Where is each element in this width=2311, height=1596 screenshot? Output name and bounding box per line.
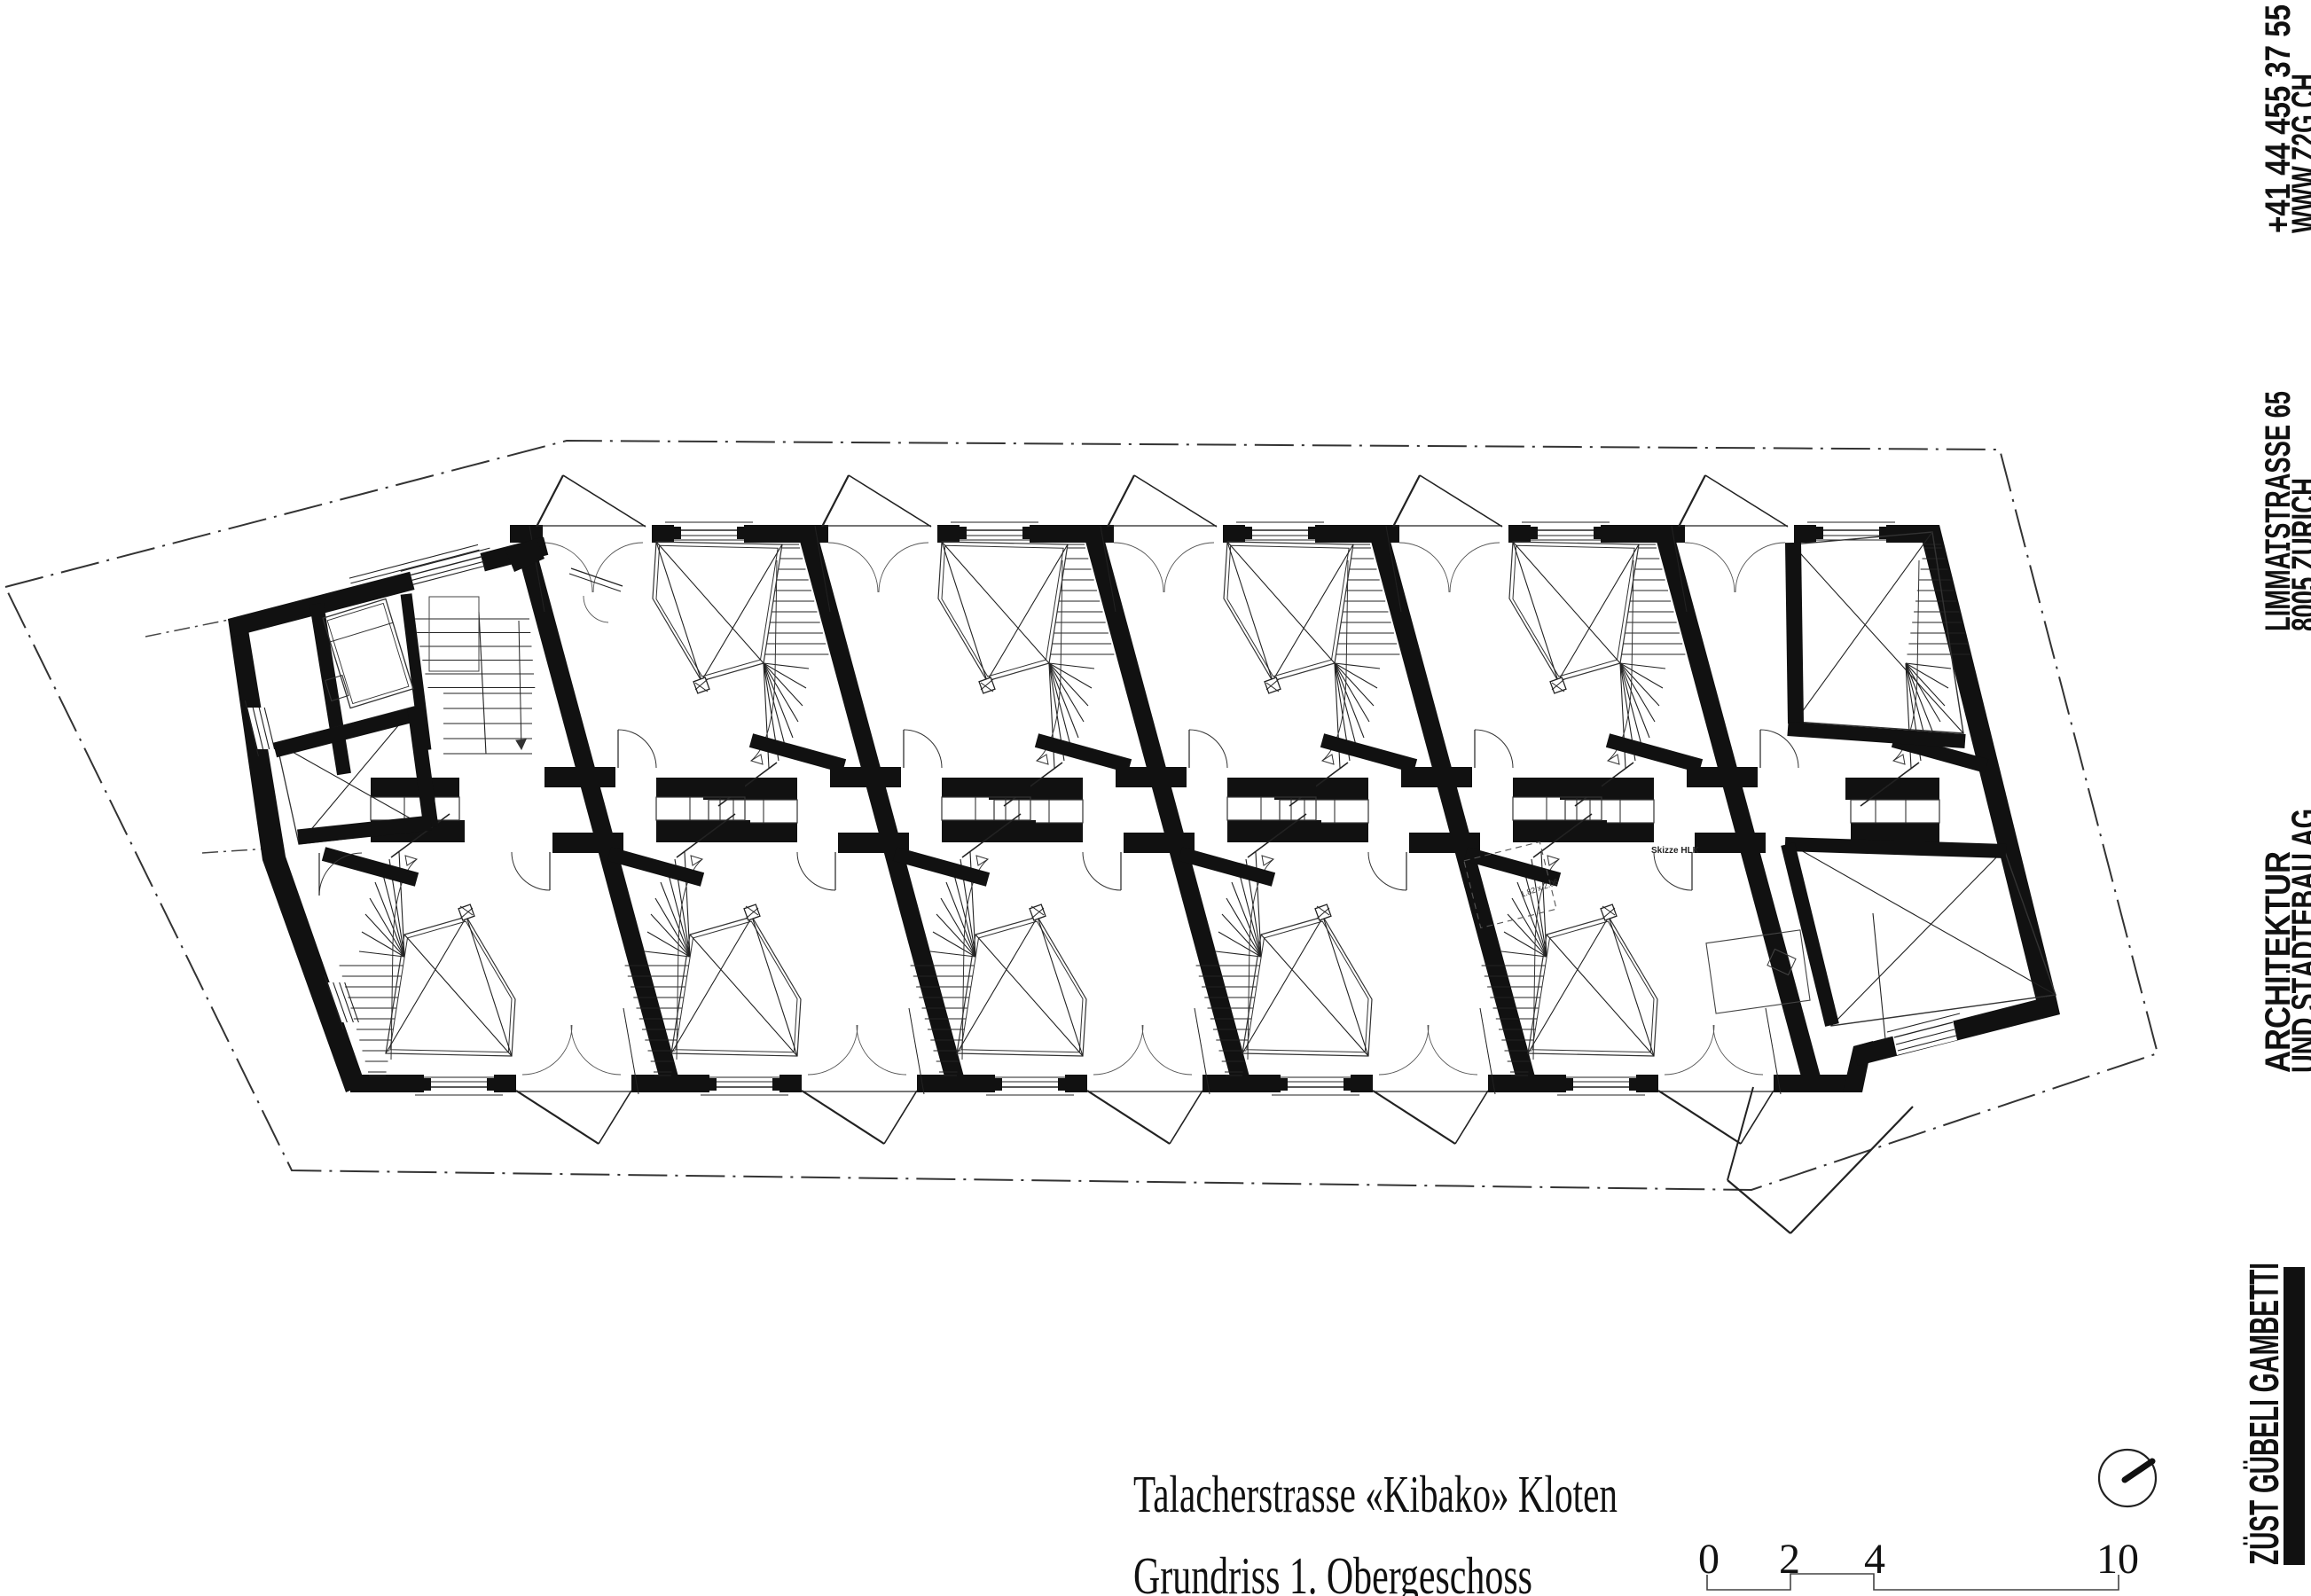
svg-text:10: 10 <box>2096 1536 2139 1583</box>
svg-text:2: 2 <box>1779 1536 1800 1583</box>
svg-text:0: 0 <box>1698 1536 1720 1583</box>
svg-text:Grundriss 1. Obergeschoss: Grundriss 1. Obergeschoss <box>1133 1546 1532 1596</box>
svg-text:ZÜST GÜBELI GAMBETTI: ZÜST GÜBELI GAMBETTI <box>2241 1263 2287 1565</box>
svg-text:4: 4 <box>1864 1536 1885 1583</box>
svg-text:Talacherstrasse «Kibako» Klote: Talacherstrasse «Kibako» Kloten <box>1133 1465 1618 1523</box>
svg-text:Skizze HLK: Skizze HLK <box>1651 846 1700 856</box>
svg-text:UND STÄDTEBAU AG: UND STÄDTEBAU AG <box>2285 809 2311 1073</box>
svg-text:8005 ZÜRICH: 8005 ZÜRICH <box>2284 478 2311 631</box>
svg-text:WWW.Z2G.CH: WWW.Z2G.CH <box>2285 74 2311 233</box>
